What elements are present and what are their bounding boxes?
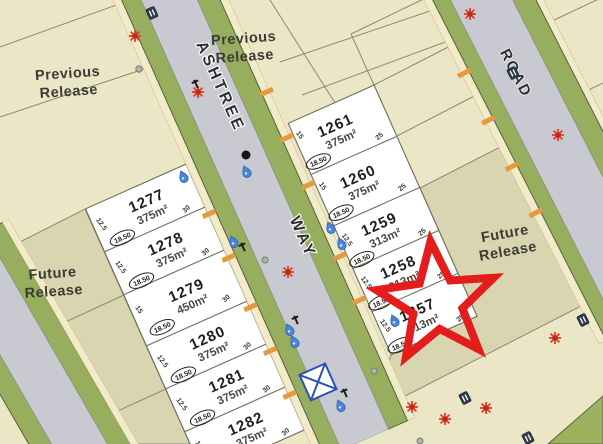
street-tree-icon — [282, 266, 294, 278]
manhole-dot-icon — [136, 66, 142, 72]
street-tree-icon — [552, 129, 564, 141]
map-canvas: 1277 375m² 18.50 30 12.5 1278 375m² 18.5… — [0, 0, 603, 444]
street-tree-icon — [480, 402, 492, 414]
street-tree-icon — [439, 413, 451, 425]
svg-text:Future: Future — [28, 264, 77, 283]
manhole-dot-icon — [417, 438, 423, 444]
street-tree-icon — [549, 332, 561, 344]
street-tree-icon — [129, 30, 141, 42]
subdivision-map: 1277 375m² 18.50 30 12.5 1278 375m² 18.5… — [0, 0, 603, 444]
manhole-dot-icon — [242, 151, 251, 160]
street-tree-icon — [464, 8, 476, 20]
manhole-dot-icon — [371, 368, 377, 374]
manhole-dot-icon — [262, 257, 268, 263]
street-tree-icon — [406, 401, 418, 413]
